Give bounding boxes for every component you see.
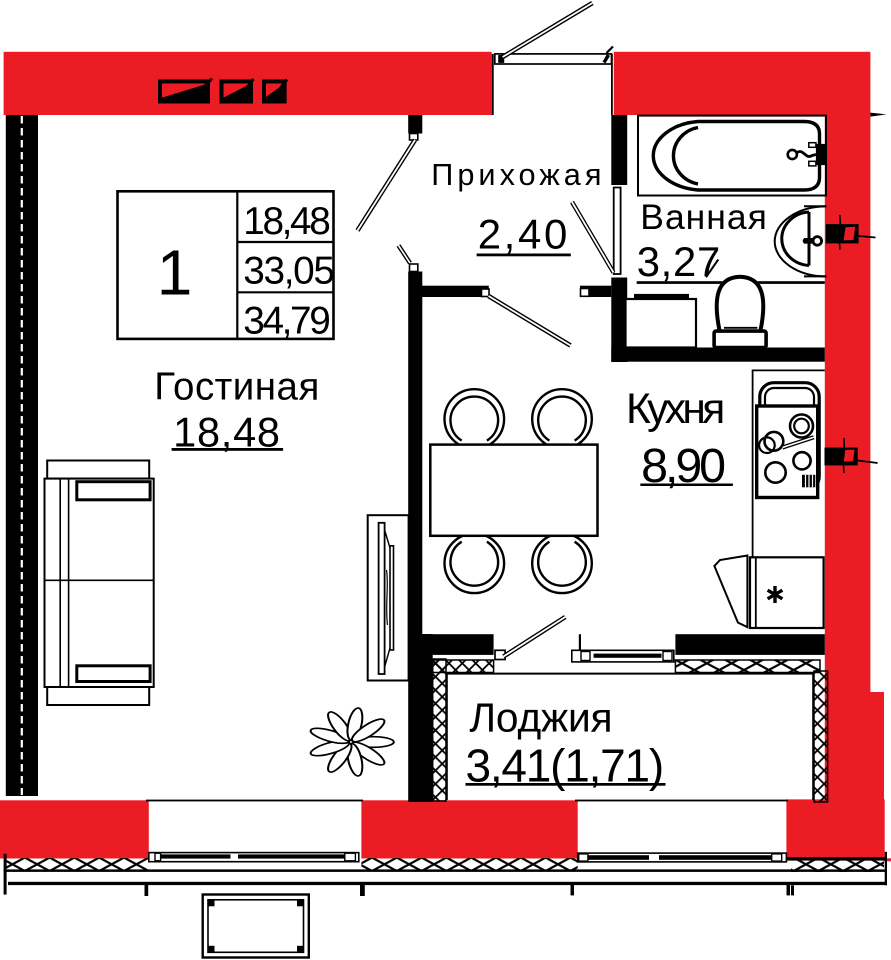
svg-text:2,40: 2,40	[478, 210, 568, 257]
svg-text:3,27: 3,27	[637, 238, 721, 285]
svg-text:18,48: 18,48	[243, 200, 330, 243]
svg-text:34,79: 34,79	[243, 300, 330, 343]
svg-text:Лоджия: Лоджия	[469, 694, 612, 740]
svg-text:33,05: 33,05	[243, 250, 335, 293]
svg-text:Ванная: Ванная	[640, 197, 767, 237]
svg-text:Гостиная: Гостиная	[154, 365, 319, 408]
svg-text:Кухня: Кухня	[626, 386, 725, 433]
svg-text:1: 1	[157, 236, 193, 308]
